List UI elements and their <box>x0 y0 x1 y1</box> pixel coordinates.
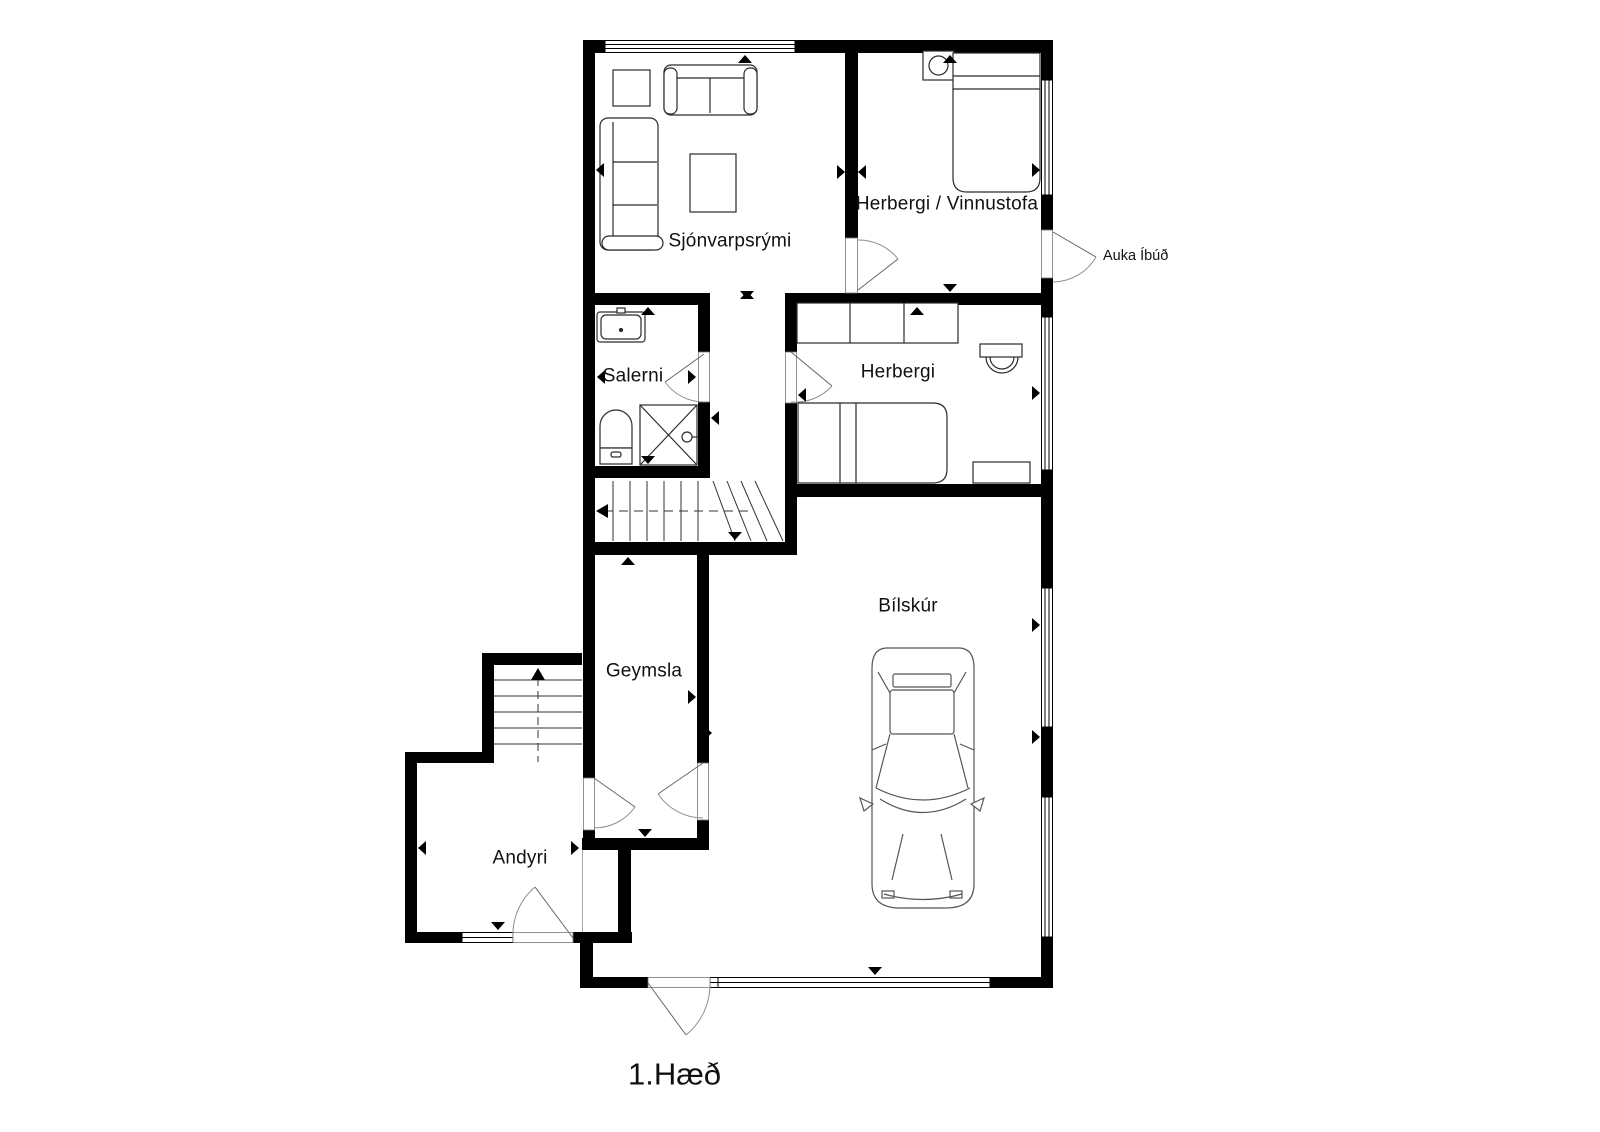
wall <box>583 542 797 555</box>
wall <box>785 403 797 555</box>
garage-door <box>710 978 990 988</box>
room-label-toilet: Salerni <box>603 367 664 386</box>
room-label-bedroom: Herbergi <box>861 363 935 382</box>
door-storage-right <box>658 763 703 818</box>
wall <box>583 293 710 305</box>
wall <box>698 402 710 478</box>
loveseat-icon <box>664 65 757 115</box>
wall-right <box>1041 470 1053 588</box>
toilet-icon <box>600 410 632 464</box>
bed-single-icon <box>798 403 947 483</box>
door-storage-left <box>594 778 635 828</box>
room-label-entry-hall: Andyri <box>492 849 547 868</box>
window-right-2 <box>1042 317 1053 470</box>
stairs-direction-arrow <box>596 504 608 518</box>
wall-right <box>1041 195 1053 230</box>
wall <box>785 484 1053 497</box>
door-bedroom <box>791 352 832 402</box>
coffee-table-icon <box>690 154 736 212</box>
room-label-bedroom-workroom: Herbergi / Vinnustofa <box>856 195 1038 214</box>
wall-right <box>1041 40 1053 80</box>
car-icon <box>860 648 984 908</box>
floor-plan-drawing <box>0 0 1600 1132</box>
wall <box>697 820 709 850</box>
window-top <box>605 41 795 53</box>
side-table-icon <box>613 70 650 106</box>
door-entry-hall <box>513 887 573 938</box>
room-label-extra-apartment: Auka Íbúð <box>1103 249 1168 264</box>
floor-title: 1.Hæð <box>628 1059 721 1090</box>
washer-icon <box>923 51 954 80</box>
floor-plan-page: Sjónvarpsrými Herbergi / Vinnustofa Auka… <box>0 0 1600 1132</box>
wall <box>583 466 710 478</box>
window-right-4 <box>1042 797 1053 937</box>
wall <box>580 943 593 988</box>
wardrobe-icon <box>797 303 958 343</box>
stairs-up-arrow <box>531 668 545 680</box>
bedroom-workroom-furniture <box>923 51 1040 192</box>
car-mirror-left <box>860 798 873 811</box>
wall <box>785 293 797 352</box>
wall <box>482 653 494 763</box>
bathroom-sink-icon <box>597 308 645 342</box>
wall <box>482 653 582 665</box>
entry-staircase <box>494 668 582 762</box>
room-label-storage: Geymsla <box>606 662 682 681</box>
toilet-fixtures <box>597 308 698 465</box>
door-extra-apartment <box>1053 232 1096 282</box>
wall <box>583 830 595 850</box>
wall-left <box>583 40 595 778</box>
window-right-3 <box>1042 588 1053 727</box>
door-bedroom-workroom <box>858 240 898 290</box>
room-label-tv-room: Sjónvarpsrými <box>669 232 792 251</box>
tv-room-furniture <box>600 65 757 250</box>
wall <box>582 838 709 850</box>
wall <box>618 850 631 932</box>
wall-right <box>1041 727 1053 797</box>
room-label-garage: Bílskúr <box>878 597 937 616</box>
wall-right <box>1041 278 1053 317</box>
wall <box>405 752 417 943</box>
window-entry <box>462 933 513 943</box>
wall <box>405 752 493 763</box>
bedroom-furniture <box>797 303 1030 483</box>
door-main-entrance <box>648 983 710 1035</box>
bedside-table-icon <box>973 462 1030 483</box>
main-staircase <box>596 481 783 541</box>
corner-sink-icon <box>980 344 1022 373</box>
wall <box>698 293 710 352</box>
wall <box>573 932 632 943</box>
window-right-1 <box>1042 80 1053 195</box>
sofa-icon <box>600 118 663 250</box>
bed-double-icon <box>953 53 1040 192</box>
wall-right <box>1041 937 1053 988</box>
